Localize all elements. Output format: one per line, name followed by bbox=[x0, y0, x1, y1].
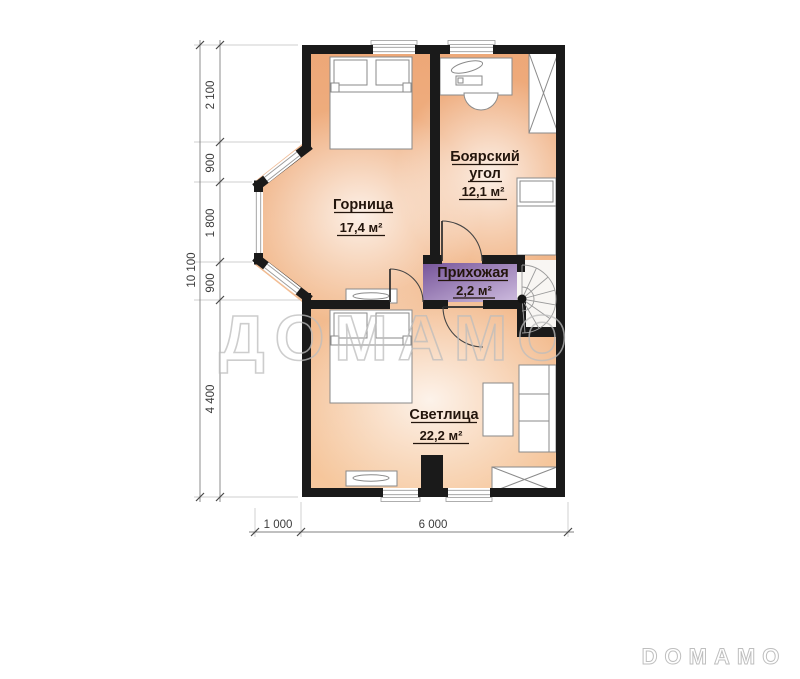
dim-left-seg-2: 1 800 bbox=[205, 209, 217, 238]
room-area-boyarsky: 12,1 м² bbox=[462, 184, 506, 199]
single-bed-icon bbox=[517, 178, 556, 255]
dim-bottom-seg-1: 6 000 bbox=[419, 519, 448, 531]
pillow-icon bbox=[520, 181, 553, 202]
room-label-gornitsa: Горница bbox=[333, 197, 394, 213]
double-bed-icon bbox=[330, 57, 412, 149]
floor-plan-svg: Горница 17,4 м² Боярский угол 12,1 м² Пр… bbox=[0, 0, 800, 679]
pillow-icon bbox=[376, 60, 409, 85]
dim-left-seg-3: 900 bbox=[205, 273, 217, 292]
room-label-svetlitsa: Светлица bbox=[409, 407, 479, 423]
pillow-icon bbox=[334, 60, 367, 85]
table-icon bbox=[483, 383, 513, 436]
window-icon bbox=[381, 488, 420, 502]
room-label-boyarsky-2: угол bbox=[469, 166, 501, 182]
outer-wall-right bbox=[556, 45, 565, 497]
hall-wall-stub bbox=[423, 255, 442, 264]
sofa-icon bbox=[519, 365, 556, 452]
window-icon bbox=[446, 488, 492, 502]
hall-wall-stub bbox=[482, 255, 517, 264]
watermark-small: DOMAMO bbox=[642, 644, 787, 669]
window-icon bbox=[371, 41, 417, 55]
wardrobe-icon bbox=[529, 53, 558, 133]
window-icon bbox=[448, 41, 495, 55]
floor-plan-page: Горница 17,4 м² Боярский угол 12,1 м² Пр… bbox=[0, 0, 800, 679]
room-label-boyarsky-1: Боярский bbox=[450, 149, 520, 165]
dim-left-total: 10 100 bbox=[186, 252, 198, 287]
desk-icon bbox=[440, 58, 512, 95]
dim-left-seg-0: 2 100 bbox=[205, 81, 217, 110]
dim-left-seg-1: 900 bbox=[205, 153, 217, 172]
dim-left-seg-4: 4 400 bbox=[205, 385, 217, 414]
interior-wall-vertical bbox=[430, 45, 440, 263]
stove-pier bbox=[421, 455, 443, 497]
bay-window-icon bbox=[254, 192, 263, 253]
room-label-prihozhaya: Прихожая bbox=[437, 265, 509, 281]
radiator-icon bbox=[346, 471, 397, 486]
outer-wall-left-upper bbox=[302, 45, 311, 150]
room-area-gornitsa: 17,4 м² bbox=[340, 220, 384, 235]
room-area-prihozhaya: 2,2 м² bbox=[456, 283, 492, 298]
stair-nook-wall bbox=[517, 255, 525, 272]
dim-bottom-seg-0: 1 000 bbox=[264, 519, 293, 531]
room-area-svetlitsa: 22,2 м² bbox=[420, 428, 464, 443]
watermark-large: ДОМАМО bbox=[219, 302, 577, 374]
